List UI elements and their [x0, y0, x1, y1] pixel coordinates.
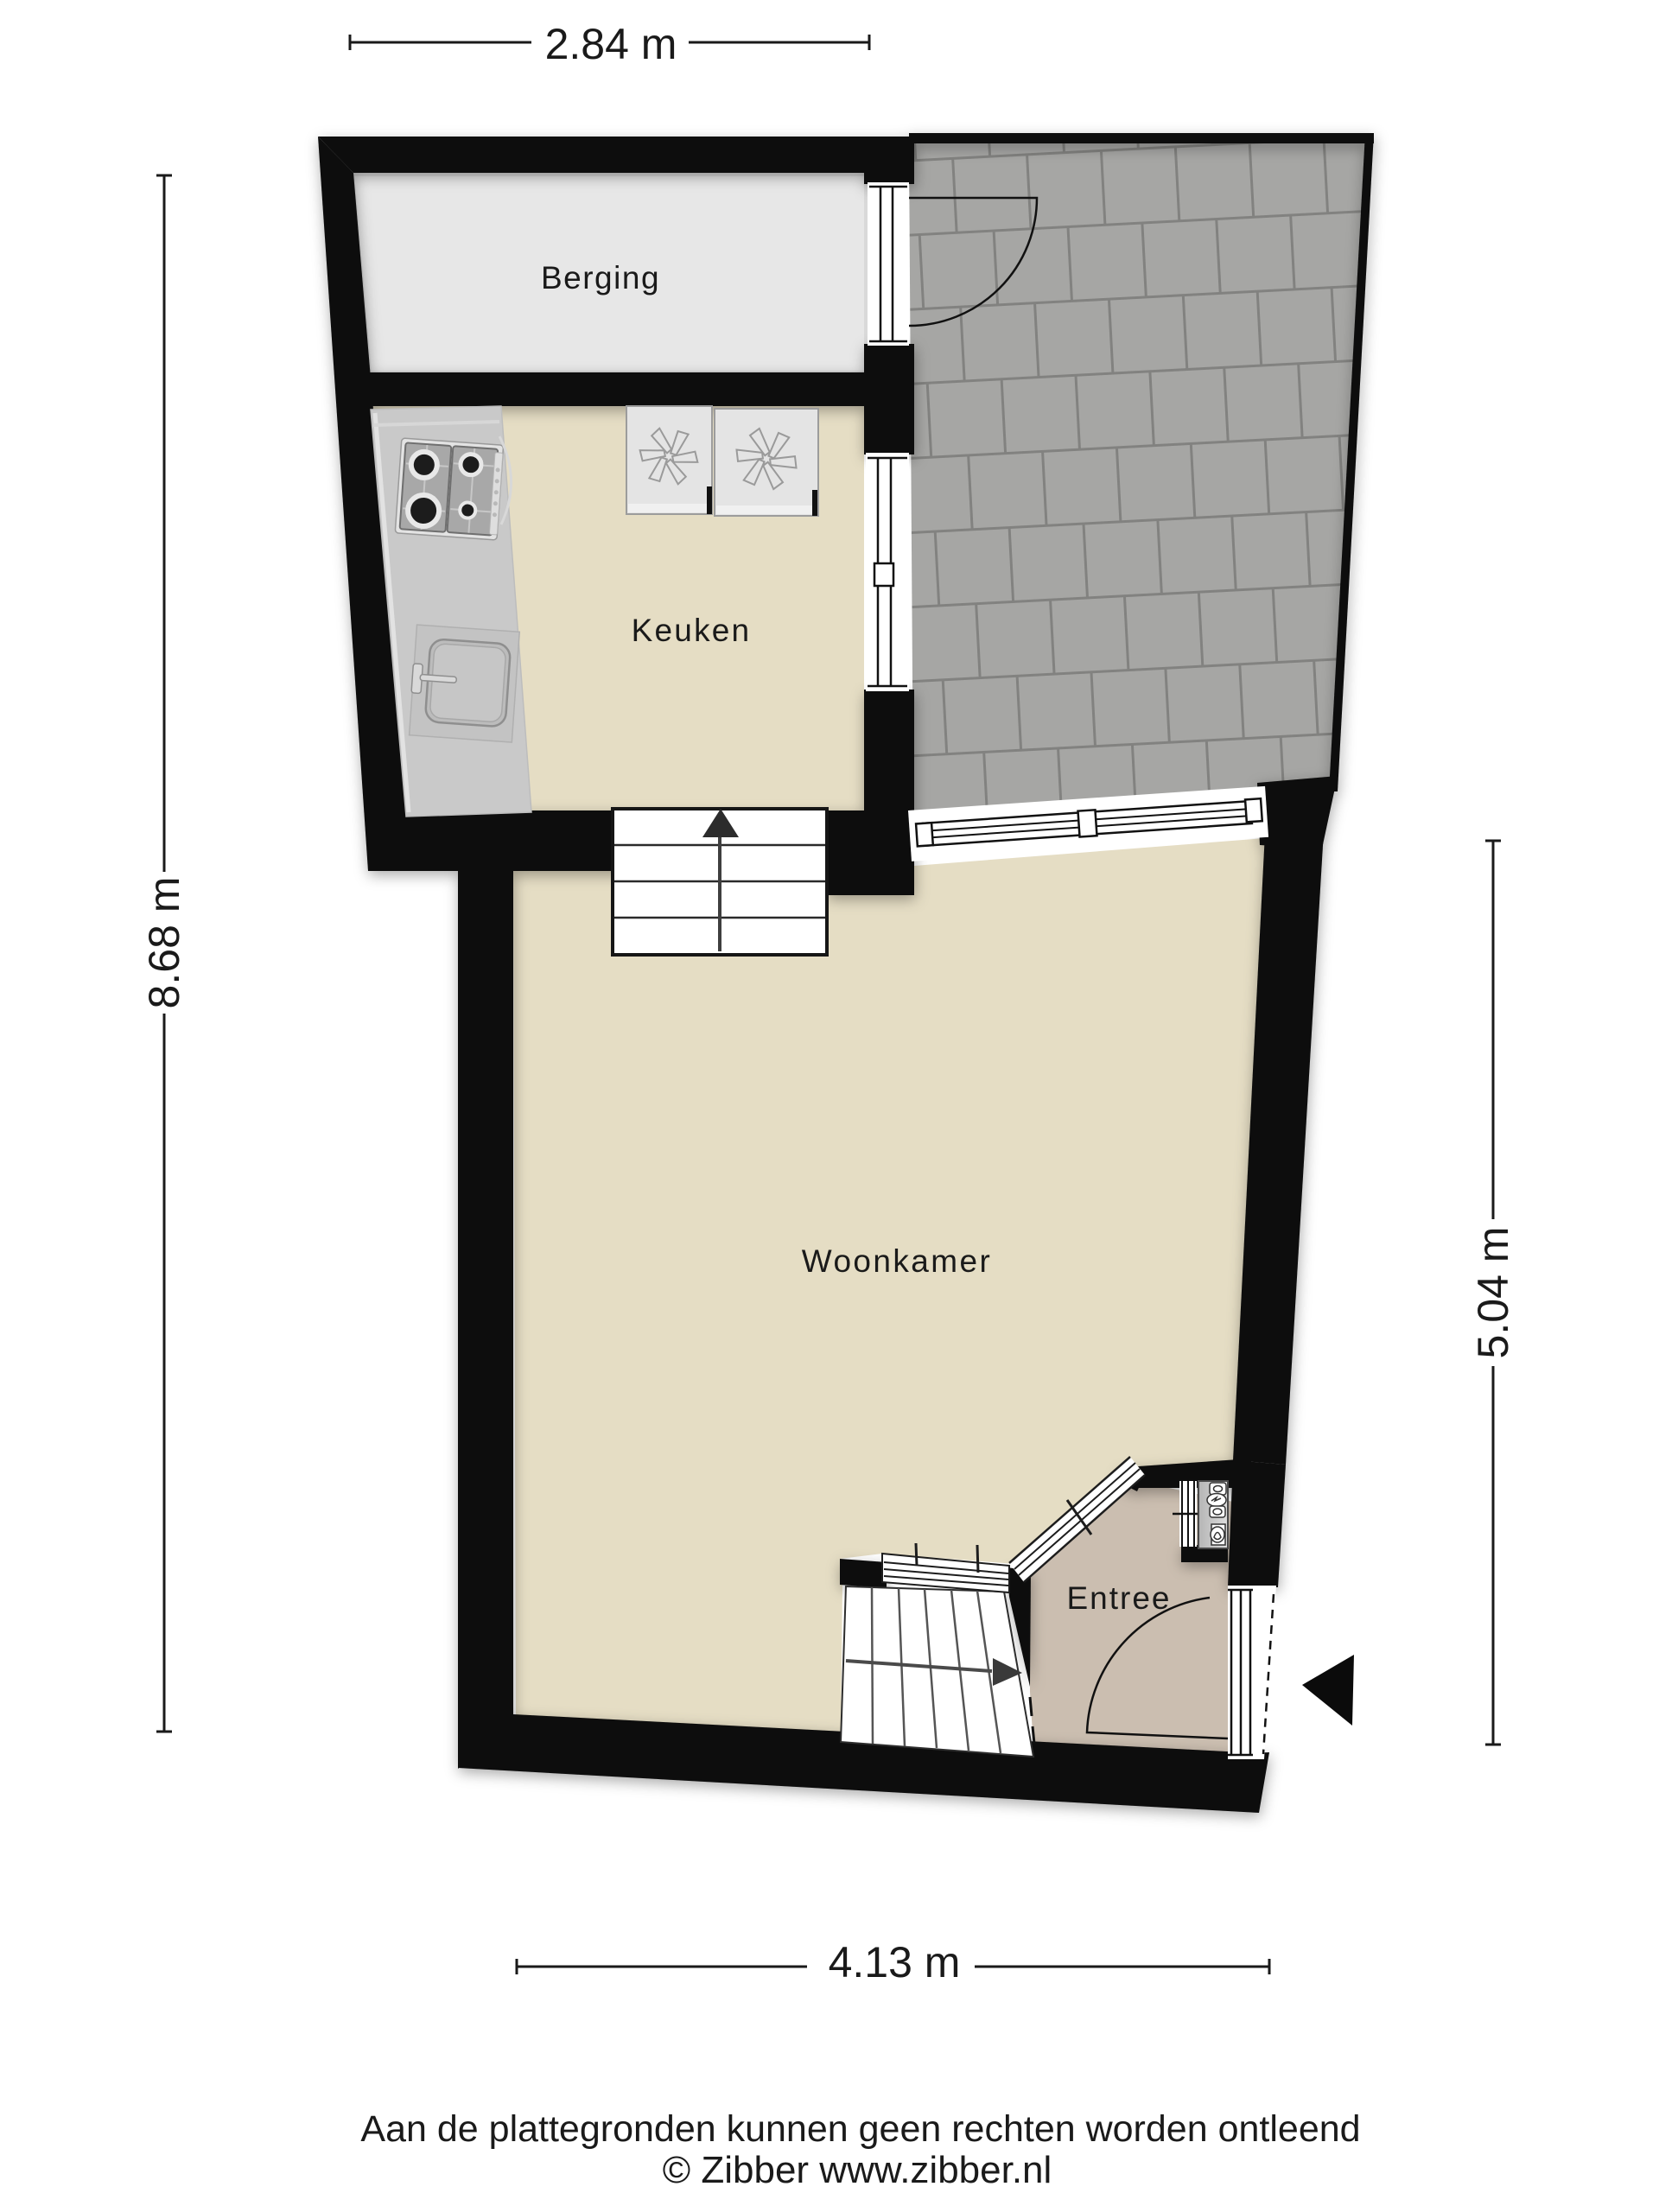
svg-text:© Zibber www.zibber.nl: © Zibber www.zibber.nl: [663, 2149, 1052, 2191]
svg-text:8.68 m: 8.68 m: [140, 877, 188, 1009]
svg-text:Aan de plattegronden kunnen ge: Aan de plattegronden kunnen geen rechten…: [360, 2108, 1360, 2150]
svg-text:5.04 m: 5.04 m: [1469, 1227, 1517, 1359]
svg-text:Berging: Berging: [541, 260, 660, 296]
svg-text:Keuken: Keuken: [632, 613, 752, 648]
svg-text:2.84 m: 2.84 m: [545, 20, 677, 68]
svg-text:4.13 m: 4.13 m: [829, 1938, 961, 1986]
svg-text:Woonkamer: Woonkamer: [802, 1243, 992, 1279]
svg-text:Entree: Entree: [1066, 1580, 1171, 1616]
